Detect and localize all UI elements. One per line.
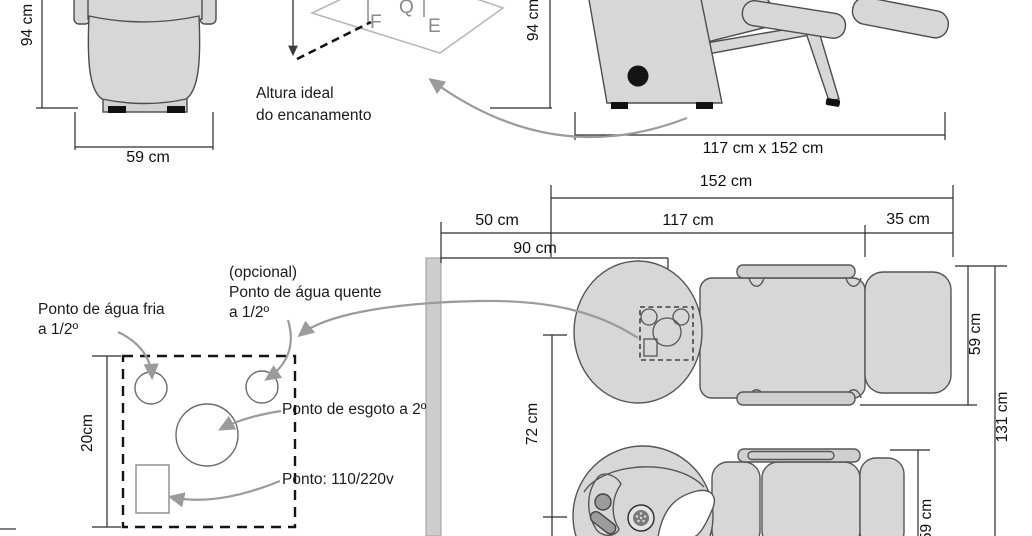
hot-water-point bbox=[246, 371, 278, 403]
dim-72-label: 72 cm bbox=[524, 392, 544, 456]
cold-water-label-line1: Ponto de água fria bbox=[38, 300, 165, 320]
side-view-height-label: 94 cm bbox=[525, 0, 545, 52]
dim-90-label: 90 cm bbox=[495, 240, 575, 258]
hot-water-label-line3: a 1/2º bbox=[229, 303, 269, 323]
arrow-hot-water bbox=[267, 320, 291, 379]
square-dim-label: 20cm bbox=[79, 401, 99, 465]
front-view-height-label: 94 cm bbox=[19, 0, 39, 57]
hot-water-label-line1: (opcional) bbox=[229, 263, 297, 283]
letter-f-label: F bbox=[370, 12, 382, 34]
plumbing-detail-square bbox=[123, 356, 295, 527]
drain-point bbox=[176, 404, 238, 466]
power-label: Ponto: 110/220v bbox=[282, 470, 394, 490]
arrow-power bbox=[171, 481, 280, 500]
top-view-chair-lower bbox=[573, 446, 904, 536]
iso-caption-line2: do encanamento bbox=[256, 106, 371, 126]
drain-label: Ponto de esgoto a 2º bbox=[282, 400, 426, 420]
faucet bbox=[595, 494, 611, 510]
power-outlet bbox=[136, 465, 169, 513]
iso-plumbing-plane bbox=[293, 0, 503, 59]
iso-caption-line1: Altura ideal bbox=[256, 84, 334, 104]
dim-117-label: 117 cm bbox=[648, 212, 728, 230]
dim-59-lower-label: 59 cm bbox=[918, 488, 938, 536]
wall bbox=[426, 258, 441, 536]
installation-diagram: 94 cm 59 cm F Q E Altura ideal do encana… bbox=[0, 0, 1032, 536]
cold-water-label-line2: a 1/2º bbox=[38, 320, 78, 340]
dim-152-label: 152 cm bbox=[686, 173, 766, 191]
letter-e-label: E bbox=[428, 16, 441, 38]
basin-drain bbox=[628, 505, 654, 531]
dim-131-label: 131 cm bbox=[994, 385, 1014, 449]
side-view-footprint-label: 117 cm x 152 cm bbox=[683, 140, 843, 158]
front-view-width-label: 59 cm bbox=[108, 149, 188, 167]
side-view-chair bbox=[588, 0, 951, 109]
dim-59-upper-label: 59 cm bbox=[967, 302, 987, 366]
diagram-linework bbox=[0, 0, 1032, 536]
front-view-chair bbox=[74, 0, 216, 113]
hot-water-label-line2: Ponto de água quente bbox=[229, 283, 382, 303]
letter-q-label: Q bbox=[399, 0, 414, 19]
dim-50-label: 50 cm bbox=[457, 212, 537, 230]
dim-35-label: 35 cm bbox=[868, 211, 948, 229]
plumbing-dimension-lines bbox=[0, 356, 121, 529]
